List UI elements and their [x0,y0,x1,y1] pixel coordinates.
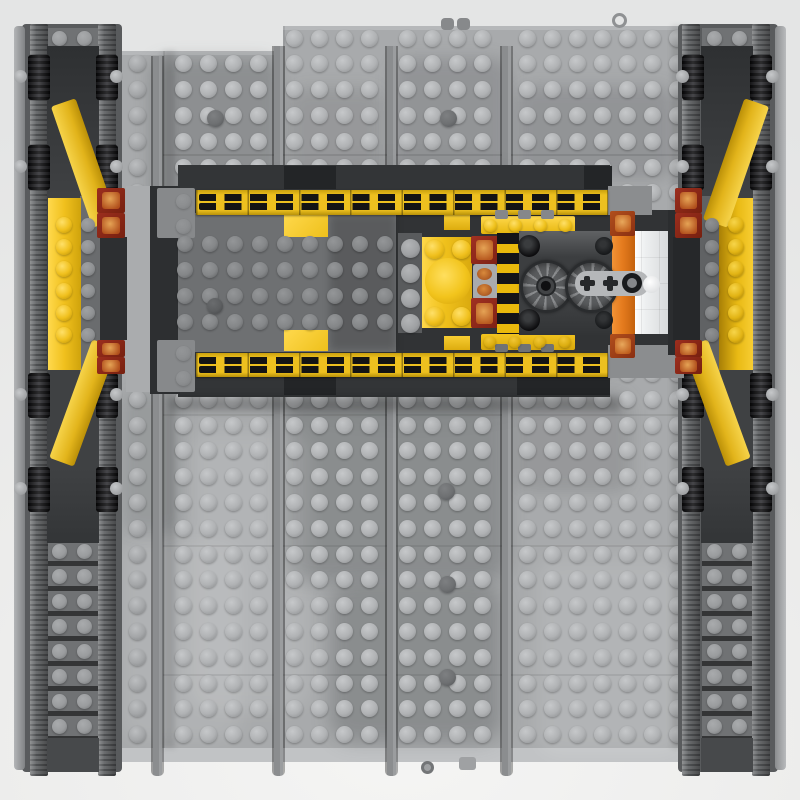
strip-stud [129,675,146,692]
plate-stud [361,700,378,717]
support-left-charcoal [100,237,127,340]
plate-stud [175,675,192,692]
liftarm-axle-hole [580,280,595,287]
plate-stud [424,675,441,692]
plate-stud [619,55,636,72]
plate-stud [519,597,536,614]
clamp-axle-bump [14,70,27,83]
plate-stud [200,597,217,614]
plate-stud [250,520,267,537]
plate-stud [644,623,661,640]
clamp-axle-bump [14,388,27,401]
roadbed-stud [227,288,243,304]
strip-stud [129,81,146,98]
trans-brick-glow [102,192,120,209]
sleeper-stud [732,594,747,609]
plate-stud [250,623,267,640]
plate-stud [200,649,217,666]
cap-stud [176,219,191,234]
plate-stud [594,81,611,98]
plate-stud [225,494,242,511]
machine-red-brick-bottom-glass [476,303,493,324]
plate-stud [619,675,636,692]
plate-stud [619,81,636,98]
strip-stud [129,597,146,614]
trans-cube-glow [615,338,631,354]
plate-stud [569,494,586,511]
plate-stud [644,55,661,72]
clamp-axle-bump [766,388,779,401]
support-gray-stud [705,262,719,276]
plate-stud [175,726,192,743]
yellow-bit-bottom [444,336,470,350]
plate-stud [336,546,353,563]
strip-stud [129,468,146,485]
sleeper-stud [52,569,67,584]
plate-stud [519,81,536,98]
plate-stud [200,700,217,717]
plate-stud [424,571,441,588]
sleeper-stud [707,644,722,659]
sleeper-stud [77,694,92,709]
trans-brick-glow [680,217,697,234]
plate-stud [225,597,242,614]
plate-stud [544,520,561,537]
plate-stud [569,468,586,485]
plate-stud [399,700,416,717]
plate-stud [336,442,353,459]
plate-stud [424,81,441,98]
plate-stud [361,107,378,124]
plate-stud [569,623,586,640]
plate-stud [225,546,242,563]
plate-stud [519,55,536,72]
plate-stud [250,546,267,563]
plate-top-clip [441,18,454,30]
plate-stud [200,442,217,459]
trans-brick-glow [680,192,697,209]
roadbed-stud [302,288,318,304]
plate-stud [200,81,217,98]
plate-stud [286,442,303,459]
support-gray-stud [705,218,719,232]
plate-stud [175,649,192,666]
sleeper-stud [52,544,67,559]
plate-stud [474,442,491,459]
bar-clip [495,344,508,352]
clamp-axle-bump [110,388,123,401]
plate-stud [619,726,636,743]
plate-stud [361,571,378,588]
grille-tile-seams [196,353,608,377]
plate-stud [569,107,586,124]
roadbed-stud [352,314,368,330]
plate-stud [424,520,441,537]
roadbed-stud [177,236,193,252]
plate-stud [175,520,192,537]
plate-stud [519,494,536,511]
plate-stud [544,623,561,640]
plate-stud [175,623,192,640]
plate-stud [544,107,561,124]
roadbed-stud [227,314,243,330]
plate-stud [336,81,353,98]
plate-stud [544,468,561,485]
roadbed-stud [177,262,193,278]
plate-stud [311,649,328,666]
beam-stud-yellow [56,217,72,233]
beam-stud-yellow [56,327,72,343]
plate-stud [175,55,192,72]
plate-stud [644,107,661,124]
plate-stud [286,107,303,124]
plate-stud [336,597,353,614]
plate-stud [519,546,536,563]
liftarm-axle-hole [603,280,618,287]
sleeper-stud [52,694,67,709]
roadbed-stud [377,236,393,252]
plate-stud [449,520,466,537]
gantry-beam-bottom-dark-seg [284,374,336,395]
plate-stud [519,520,536,537]
roadbed-stud [252,314,268,330]
sleeper-stud [707,619,722,634]
plate-stud [286,546,303,563]
roadbed-stud [352,262,368,278]
plate-stud [336,700,353,717]
roadbed-stud [277,236,293,252]
plate-stud [225,81,242,98]
support-gray-stud [705,306,719,320]
plate-stud [544,700,561,717]
plate-stud [594,571,611,588]
plate-stud [286,55,303,72]
plate-stud [544,597,561,614]
support-gray-stud [705,240,719,254]
roadbed-stud [302,262,318,278]
roadbed-stud [252,236,268,252]
plate-stud [544,55,561,72]
housing-black-round [595,237,613,255]
track-right-bed-bottom [701,738,753,772]
plate-stud [619,649,636,666]
plate-stud [361,520,378,537]
plate-stud [200,623,217,640]
roadbed-stud [177,314,193,330]
plate-stud [399,546,416,563]
sleeper-stud [732,31,747,46]
roadbed-stud [202,262,218,278]
machine-lattice-hole [477,268,492,280]
roadbed-stud [202,236,218,252]
plate-stud [449,726,466,743]
plate-stud [336,571,353,588]
plate-stud [250,107,267,124]
sleeper-stud [77,719,92,734]
plate-stud [200,468,217,485]
bar-stud [534,336,546,348]
plate-stud [200,55,217,72]
plate-stud [286,571,303,588]
clamp-axle-bump [766,482,779,495]
plate-stud [361,623,378,640]
plate-stud [569,546,586,563]
plate-stud [175,571,192,588]
beam-stud-yellow [728,261,744,277]
beam-stud-yellow [56,283,72,299]
bar-stud [534,219,547,232]
plate-stud [449,597,466,614]
plate-stud [175,494,192,511]
strip-stud [129,571,146,588]
plate-stud [449,55,466,72]
trans-brick-glow [102,217,120,234]
roadbed-stud [227,262,243,278]
roadbed-stud [252,262,268,278]
strip-stud [129,442,146,459]
plate-stud [286,649,303,666]
plate-stud [250,571,267,588]
plate-stud [619,468,636,485]
support-gray-stud [81,284,95,298]
plate-stud [569,726,586,743]
bar-stud [559,219,572,232]
plate-stud [200,520,217,537]
plate-stud [311,494,328,511]
plate-stud [474,520,491,537]
plate-stud [424,468,441,485]
rail-clamp [28,373,50,418]
plate-stud [336,468,353,485]
plate-stud [250,726,267,743]
plate-stud [399,30,416,47]
plate-stud [544,649,561,666]
plate-stud [424,546,441,563]
plate-stud [424,700,441,717]
sleeper-stud [52,719,67,734]
dark-stud [440,110,457,127]
plate-stud [519,468,536,485]
plate-stud [175,107,192,124]
plate-stud [644,520,661,537]
white-box-seam [635,309,668,310]
plate-stud [311,597,328,614]
bar-stud [484,219,497,232]
plate-stud [361,468,378,485]
plate-stud [594,107,611,124]
plate-stud [544,442,561,459]
plate-stud [311,726,328,743]
plate-stud [474,30,491,47]
plate-stud [424,597,441,614]
plate-stud [569,649,586,666]
plate-stud [569,675,586,692]
plate-stud [336,30,353,47]
grille-row-bottom [196,353,608,377]
plate-stud [225,649,242,666]
roadbed-stud [377,262,393,278]
plate-stud [594,675,611,692]
sleeper-stud [77,669,92,684]
plate-stud [644,700,661,717]
trans-brick-glow [102,360,120,372]
bar-stud [509,336,521,348]
plate-stud [225,675,242,692]
plate-stud [225,623,242,640]
plate-stud [200,494,217,511]
support-gray-stud [81,262,95,276]
plate-stud [594,623,611,640]
plate-stud [544,494,561,511]
plate-stud [544,675,561,692]
plate-stud [474,649,491,666]
plate-stud [225,55,242,72]
plate-stud [311,107,328,124]
white-box-seam [635,257,668,258]
plate-stud [286,700,303,717]
plate-stud [399,494,416,511]
plate-stud [594,468,611,485]
trans-brick-glow [102,343,120,355]
yellow-plate-stud [452,240,471,259]
beam-stud-yellow [56,261,72,277]
sleeper-stud [732,694,747,709]
plate-stud [225,571,242,588]
rail-clamp [28,467,50,512]
plate-stud [424,623,441,640]
clamp-axle-bump [110,160,123,173]
plate-stud [594,55,611,72]
support-gray-stud [81,218,95,232]
bar-stud [484,336,496,348]
plate-stud [336,726,353,743]
beam-stud-yellow [56,305,72,321]
clamp-axle-bump [14,482,27,495]
sleeper-stud [52,594,67,609]
plate-stud [399,520,416,537]
plate-stud [311,623,328,640]
sleeper-stud [707,669,722,684]
support-gray-stud [81,240,95,254]
plate-stud [250,700,267,717]
strip-stud [129,726,146,743]
plate-stud [519,30,536,47]
roadbed-stud [302,236,318,252]
roadbed-stud [377,314,393,330]
plate-stud [644,494,661,511]
plate-stud [225,726,242,743]
plate-stud [544,726,561,743]
plate-stud [569,55,586,72]
plate-stud [336,55,353,72]
sleeper-stud [77,31,92,46]
plate-stud [336,520,353,537]
plate-stud [619,546,636,563]
beam-stud-yellow [728,327,744,343]
sleeper-stud [52,31,67,46]
yellow-plate-stud [452,307,471,326]
plate-stud [336,107,353,124]
plate-stud [619,494,636,511]
plate-stud [336,494,353,511]
plate-stud [225,700,242,717]
gantry-left-brick-column [126,186,150,392]
gray-plate-stud [401,264,420,283]
plate-stud [594,649,611,666]
plate-stud [286,494,303,511]
plate-stud [424,107,441,124]
plate-stud [569,30,586,47]
bar-stud [559,336,571,348]
plate-stud [361,649,378,666]
strip-stud [129,107,146,124]
housing-black-round [595,311,613,329]
roadbed-stud [277,262,293,278]
plate-stud [311,546,328,563]
yellow-corner-tile [284,330,328,351]
plate-stud [569,520,586,537]
liftarm-pin-ring [622,273,642,293]
strip-stud [129,494,146,511]
plate-stud [474,494,491,511]
housing-black-round [518,309,540,331]
support-right-charcoal [673,237,700,340]
plate-stud [424,442,441,459]
sleeper-stud [77,594,92,609]
plate-stud [619,623,636,640]
plate-stud [225,107,242,124]
plate-stud [200,546,217,563]
plate-stud [286,726,303,743]
sleeper-stud [707,544,722,559]
sleeper-stud [707,569,722,584]
plate-stud [361,726,378,743]
beam-stud-yellow [728,217,744,233]
plate-stud [449,442,466,459]
plate-stud [449,546,466,563]
plate-stud [474,623,491,640]
plate-stud [286,597,303,614]
sleeper-stud [707,594,722,609]
plate-stud [311,675,328,692]
plate-stud [399,442,416,459]
machine-yellow-disc [425,258,471,304]
strip-stud [129,55,146,72]
roadbed-stud [327,236,343,252]
plate-stud [250,55,267,72]
strip-stud [129,700,146,717]
plate-stud [399,675,416,692]
lego-render-scene [0,0,800,800]
roadbed-stud [277,314,293,330]
bar-clip [518,210,531,219]
plate-stud [311,571,328,588]
dark-stud [439,669,456,686]
white-knob [643,276,660,293]
plate-stud [286,468,303,485]
roadbed-dark-stud [207,298,223,314]
plate-stud [569,442,586,459]
plate-stud [311,700,328,717]
sleeper-stud [732,719,747,734]
dark-stud [438,483,455,500]
plate-stud [449,81,466,98]
plate-stud [361,546,378,563]
machine-red-brick-top-glass [476,240,493,260]
beam-stud-yellow [728,283,744,299]
sleeper-stud [707,31,722,46]
plate-stud [250,442,267,459]
